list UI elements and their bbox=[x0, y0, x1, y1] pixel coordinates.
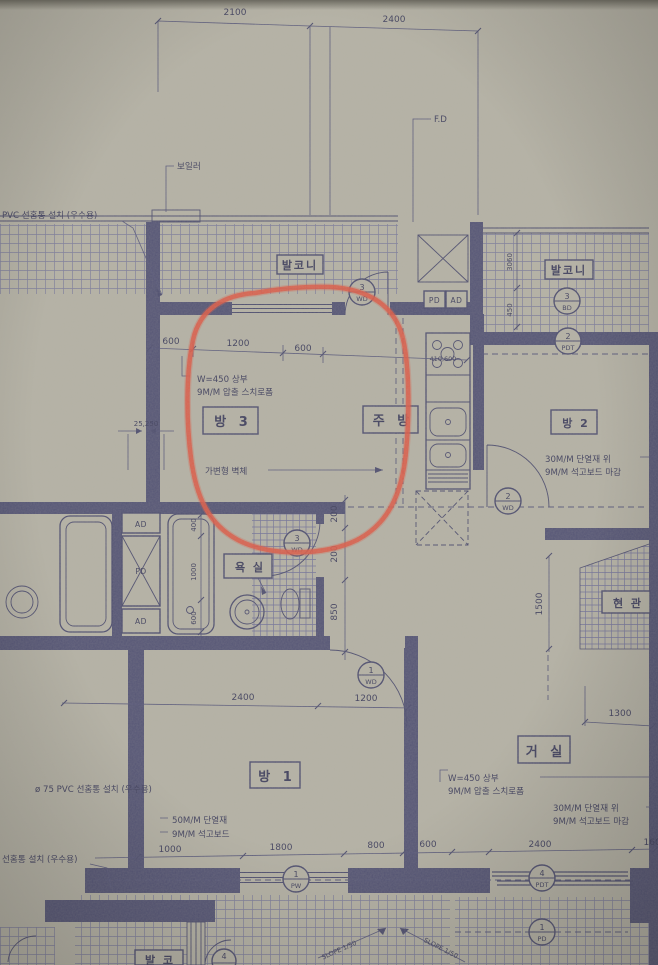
photo-effects bbox=[0, 0, 658, 965]
floor-plan-drawing: PD AD AD PD AD bbox=[0, 0, 658, 965]
blueprint-photo: PD AD AD PD AD bbox=[0, 0, 658, 965]
